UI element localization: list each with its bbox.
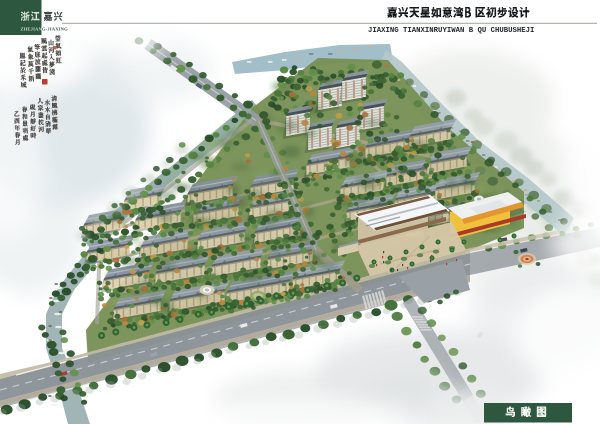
svg-text:JIAXING TIANXINRUYIWAN B QU CH: JIAXING TIANXINRUYIWAN B QU CHUBUSHEJI xyxy=(368,27,534,35)
